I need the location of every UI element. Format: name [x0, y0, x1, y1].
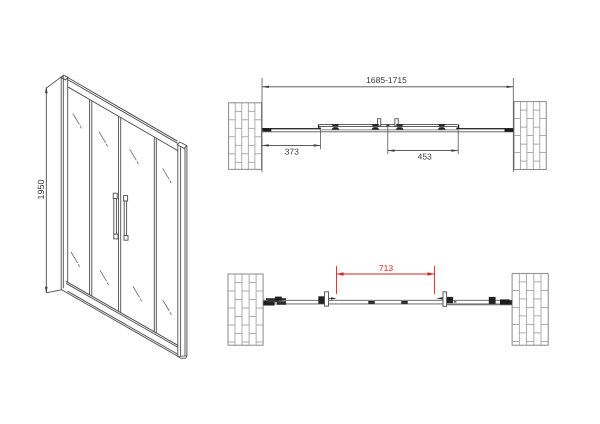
svg-text:373: 373 [285, 147, 299, 157]
svg-text:713: 713 [379, 263, 393, 273]
svg-text:1685-1715: 1685-1715 [366, 75, 407, 85]
svg-text:453: 453 [418, 151, 432, 161]
svg-text:1950: 1950 [36, 179, 46, 199]
